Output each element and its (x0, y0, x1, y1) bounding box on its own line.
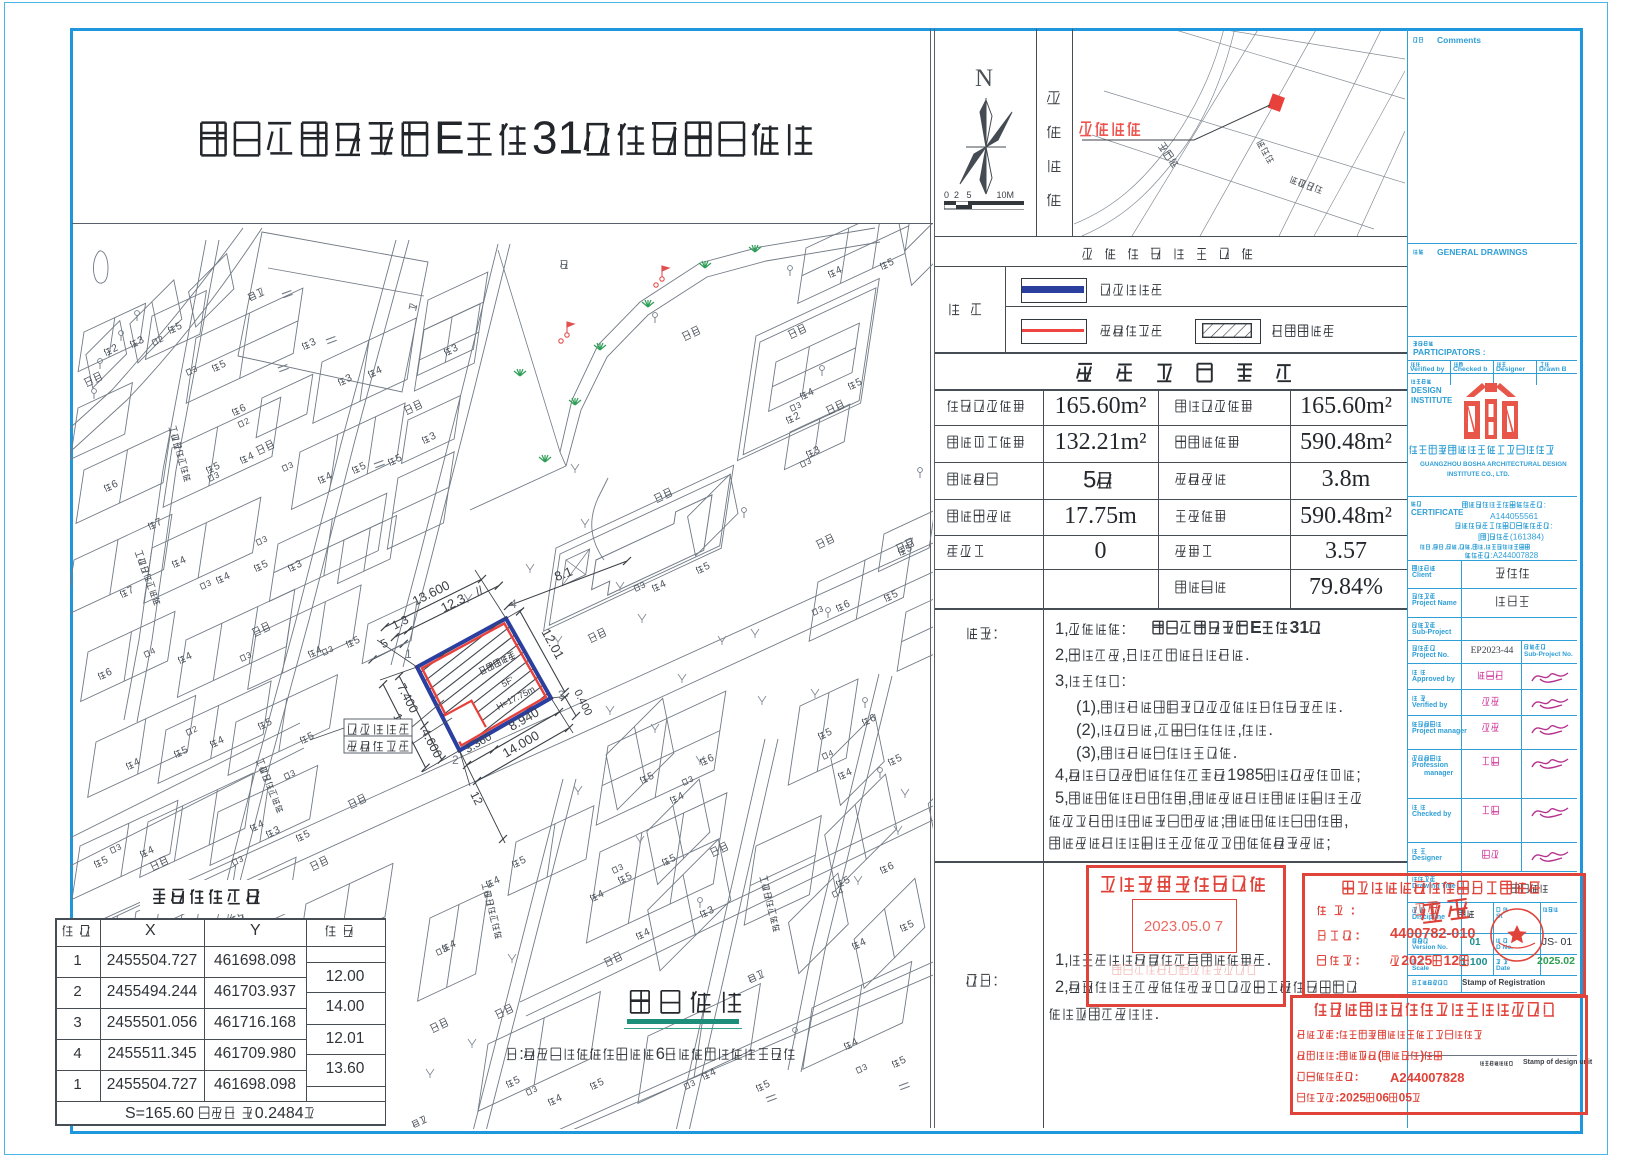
svg-text:5: 5 (378, 636, 391, 652)
svg-text:.: . (1233, 744, 1238, 762)
svg-text:,: , (1064, 672, 1069, 690)
svg-text::: : (1335, 1027, 1339, 1041)
svg-text:5: 5 (1083, 467, 1096, 494)
svg-text:1: 1 (1227, 766, 1236, 784)
svg-text:2: 2 (1055, 978, 1064, 996)
svg-text:5: 5 (1405, 1090, 1412, 1104)
svg-text:1: 1 (1055, 620, 1064, 638)
svg-text:,: , (1237, 721, 1242, 739)
svg-text::: : (1355, 1069, 1359, 1083)
svg-text::: : (1544, 499, 1546, 509)
svg-text::: : (1122, 620, 1127, 638)
svg-text:.: . (1338, 698, 1343, 716)
svg-text:S: S (125, 1105, 136, 1122)
svg-text:2: 2 (268, 1105, 277, 1122)
svg-text::: : (1355, 928, 1362, 943)
svg-text:,: , (1064, 951, 1069, 969)
svg-text::: : (1351, 903, 1362, 918)
svg-text:6: 6 (656, 1045, 665, 1063)
svg-text::: : (1355, 953, 1362, 968)
svg-text::: : (1122, 672, 1127, 690)
svg-text:1: 1 (1055, 951, 1064, 969)
svg-text:3: 3 (1081, 744, 1090, 762)
svg-text:8.1: 8.1 (552, 564, 574, 584)
svg-text:=: = (135, 1105, 144, 1122)
svg-text:,: , (1064, 789, 1069, 807)
svg-text::: : (1335, 1048, 1339, 1062)
svg-text:.: . (1268, 721, 1273, 739)
svg-text:,: , (1064, 646, 1069, 664)
svg-text:,: , (1122, 646, 1127, 664)
svg-text:6: 6 (1382, 1090, 1389, 1104)
svg-text:2: 2 (1451, 952, 1459, 968)
svg-text:7.400: 7.400 (394, 681, 421, 715)
svg-text:,: , (1064, 978, 1069, 996)
svg-text:.: . (1155, 1005, 1160, 1023)
svg-text:8: 8 (1246, 766, 1255, 784)
svg-text:5: 5 (1425, 952, 1433, 968)
svg-text:,: , (1457, 544, 1459, 551)
svg-text::: : (1550, 520, 1552, 530)
svg-text:3: 3 (1290, 617, 1300, 637)
svg-text:,: , (1064, 766, 1069, 784)
svg-text:6: 6 (153, 1105, 162, 1122)
svg-text:): ) (1420, 1048, 1424, 1062)
svg-text:1: 1 (145, 1105, 154, 1122)
svg-text:]: ] (1487, 531, 1489, 541)
svg-text:,: , (1444, 544, 1446, 551)
svg-text:4: 4 (294, 1105, 303, 1122)
svg-text:5: 5 (1055, 789, 1064, 807)
svg-text:E: E (1250, 617, 1262, 637)
svg-text:.: . (1245, 646, 1250, 664)
svg-text:,: , (1096, 698, 1101, 716)
svg-text:,: , (1188, 789, 1193, 807)
svg-text:,: , (1344, 812, 1349, 830)
svg-text:,: , (1064, 620, 1069, 638)
svg-text:9: 9 (1236, 766, 1245, 784)
svg-text:3: 3 (532, 112, 558, 164)
svg-text:1: 1 (405, 647, 412, 661)
svg-text:0: 0 (254, 1105, 263, 1122)
svg-text:,: , (1096, 744, 1101, 762)
svg-text:;: ; (1221, 812, 1226, 830)
svg-text:1: 1 (1081, 698, 1090, 716)
svg-text:5: 5 (162, 1105, 171, 1122)
svg-text:4: 4 (510, 597, 517, 611)
svg-text:4: 4 (1055, 766, 1064, 784)
svg-text:,: , (1096, 721, 1101, 739)
svg-text:8: 8 (1534, 551, 1539, 560)
svg-text:4: 4 (276, 1105, 285, 1122)
svg-text:2: 2 (1081, 721, 1090, 739)
svg-text:2: 2 (1055, 646, 1064, 664)
svg-text:,: , (1484, 544, 1486, 551)
svg-text::: : (519, 1045, 524, 1063)
svg-text:12: 12 (467, 789, 486, 808)
svg-text://: // (473, 583, 486, 599)
svg-text:E: E (434, 112, 465, 164)
svg-text:1: 1 (557, 112, 583, 164)
svg-text:0: 0 (185, 1105, 194, 1122)
svg-text:): ) (1541, 531, 1544, 541)
svg-text:,: , (1154, 721, 1159, 739)
svg-text:,: , (1471, 544, 1473, 551)
svg-text:3: 3 (1055, 672, 1064, 690)
svg-text:6: 6 (176, 1105, 185, 1122)
svg-text:,: , (1431, 544, 1433, 551)
svg-text:5: 5 (1255, 766, 1264, 784)
svg-text:8: 8 (285, 1105, 294, 1122)
svg-text:(: ( (1378, 1048, 1382, 1062)
svg-text:5: 5 (1359, 1090, 1366, 1104)
svg-text:1: 1 (1299, 617, 1309, 637)
svg-text:2: 2 (452, 753, 459, 767)
svg-text::: : (993, 971, 998, 990)
svg-text::: : (993, 624, 998, 643)
svg-text:;: ; (1326, 834, 1331, 852)
svg-text:3: 3 (558, 688, 565, 702)
svg-text:;: ; (1356, 766, 1361, 784)
